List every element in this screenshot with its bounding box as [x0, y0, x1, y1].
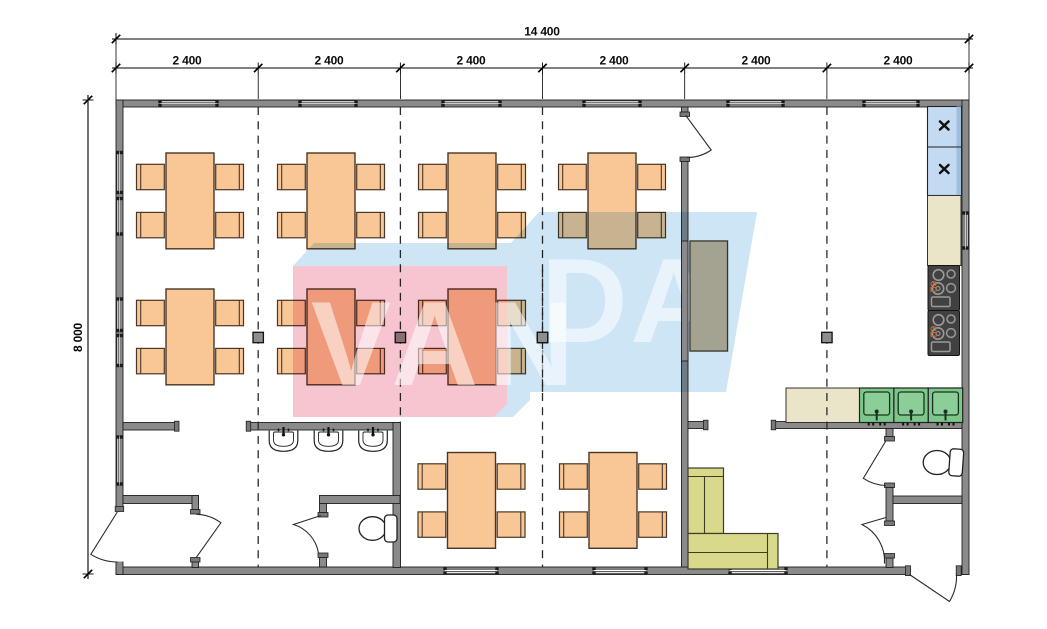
svg-text:14 400: 14 400 — [524, 25, 560, 39]
svg-text:2 400: 2 400 — [741, 54, 771, 68]
svg-text:ПЭ: ПЭ — [930, 280, 939, 292]
svg-text:ПЭ: ПЭ — [930, 325, 939, 337]
svg-text:2 400: 2 400 — [599, 54, 629, 68]
svg-text:VAN: VAN — [311, 277, 574, 411]
svg-text:8 000: 8 000 — [71, 322, 85, 352]
svg-text:2 400: 2 400 — [456, 54, 486, 68]
svg-text:2 400: 2 400 — [172, 54, 202, 68]
svg-text:2 400: 2 400 — [883, 54, 913, 68]
svg-text:2 400: 2 400 — [314, 54, 344, 68]
